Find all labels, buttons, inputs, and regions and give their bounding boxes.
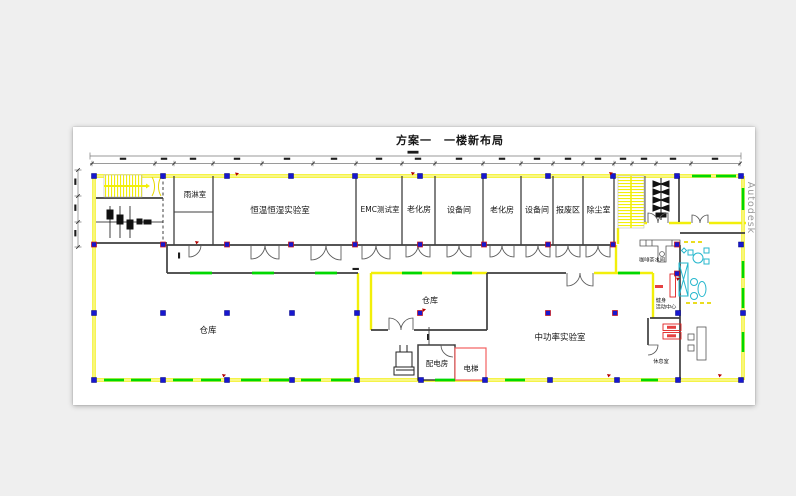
doors bbox=[189, 213, 708, 357]
label-mid-power-lab: 中功率实验室 bbox=[534, 332, 586, 343]
label-temp-humidity-lab: 恒温恒湿实验室 bbox=[250, 205, 310, 216]
label-rain-room: 雨淋室 bbox=[184, 189, 207, 199]
label-warehouse-main: 仓库 bbox=[199, 325, 217, 336]
label-aging-room-2: 老化房 bbox=[490, 205, 514, 215]
label-fitness-line1: 健身 bbox=[656, 296, 666, 304]
label-dust-room: 除尘室 bbox=[587, 205, 611, 215]
label-aging-room-1: 老化房 bbox=[407, 204, 431, 214]
sofa-set-cyan bbox=[679, 248, 709, 300]
staircase-right bbox=[618, 176, 644, 228]
label-fitness-line2: 活动中心 bbox=[656, 303, 677, 311]
label-emc-test-room: EMC测试室 bbox=[361, 204, 400, 214]
label-elevator: 电梯 bbox=[464, 363, 479, 373]
treadmills bbox=[663, 324, 681, 339]
drawing-sheet: 方案一 一楼新布局 雨淋室 恒温恒湿实验室 EMC测试室 老化房 设备间 老化房… bbox=[73, 127, 755, 405]
page-title: 方案一 一楼新布局 bbox=[396, 133, 504, 147]
label-scrap-area: 报废区 bbox=[556, 205, 580, 215]
transformer-equipment bbox=[96, 206, 163, 238]
label-equipment-room-1: 设备间 bbox=[447, 205, 471, 215]
label-lounge: 休息室 bbox=[653, 357, 669, 365]
label-warehouse-small: 仓库 bbox=[422, 295, 438, 305]
stair-butterfly-door bbox=[152, 177, 161, 196]
viewer-canvas: { "title": "方案一 一楼新布局", "watermark": "Au… bbox=[0, 0, 796, 496]
floor-plan-svg: 方案一 一楼新布局 雨淋室 恒温恒湿实验室 EMC测试室 老化房 设备间 老化房… bbox=[73, 127, 755, 405]
pump-equipment bbox=[394, 345, 414, 375]
vending-machine bbox=[655, 274, 676, 297]
label-equipment-room-2: 设备间 bbox=[525, 205, 549, 215]
lounge-table-chairs bbox=[688, 327, 706, 360]
label-power-distribution: 配电房 bbox=[426, 358, 449, 368]
label-coffee-pantry: 咖啡茶水间 bbox=[639, 256, 665, 264]
staircase-left bbox=[104, 175, 150, 197]
shelving-equipment bbox=[653, 178, 669, 220]
autodesk-watermark: Autodesk bbox=[745, 182, 755, 234]
